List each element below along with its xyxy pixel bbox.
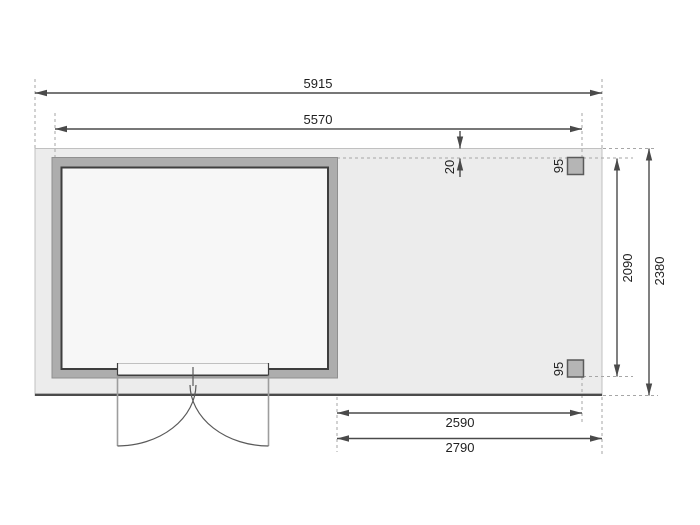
dimension-annex-width-outer: 2790 [337,435,602,455]
arrow-down-icon [614,365,620,377]
dimension-annex-width-inner: 2590 [337,410,582,430]
technical-drawing-page: 5915 5570 20 95 95 2090 2380 2590 [0,0,700,525]
arrow-right-icon [590,435,602,441]
floor-plan-drawing: 5915 5570 20 95 95 2090 2380 2590 [0,0,700,525]
shed-interior [62,168,329,370]
arrow-left-icon [55,126,67,132]
arrow-down-icon [646,384,652,396]
arrow-left-icon [337,410,349,416]
arrow-right-icon [590,90,602,96]
dim-annex-width-inner-label: 2590 [446,415,475,430]
arrow-right-icon [570,126,582,132]
dim-offset-top-label: 20 [442,160,457,174]
arrow-up-icon [614,159,620,171]
dim-post-bottom-label: 95 [551,362,566,376]
dimension-total-depth: 2380 [646,149,667,396]
arrow-up-icon [646,149,652,161]
arrow-down-icon [457,137,463,149]
dim-house-width-label: 5570 [304,112,333,127]
arrow-left-icon [35,90,47,96]
dimension-total-width: 5915 [35,76,602,96]
arrow-right-icon [570,410,582,416]
post-top [568,158,584,175]
dimension-house-width: 5570 [55,112,582,132]
dim-annex-width-outer-label: 2790 [446,440,475,455]
dim-side-depth-inner-label: 2090 [620,254,635,283]
dim-post-top-label: 95 [551,159,566,173]
dim-total-depth-label: 2380 [652,257,667,286]
dimension-side-depth-inner: 2090 [614,159,635,377]
arrow-left-icon [337,435,349,441]
dim-total-width-label: 5915 [304,76,333,91]
post-bottom [568,360,584,377]
